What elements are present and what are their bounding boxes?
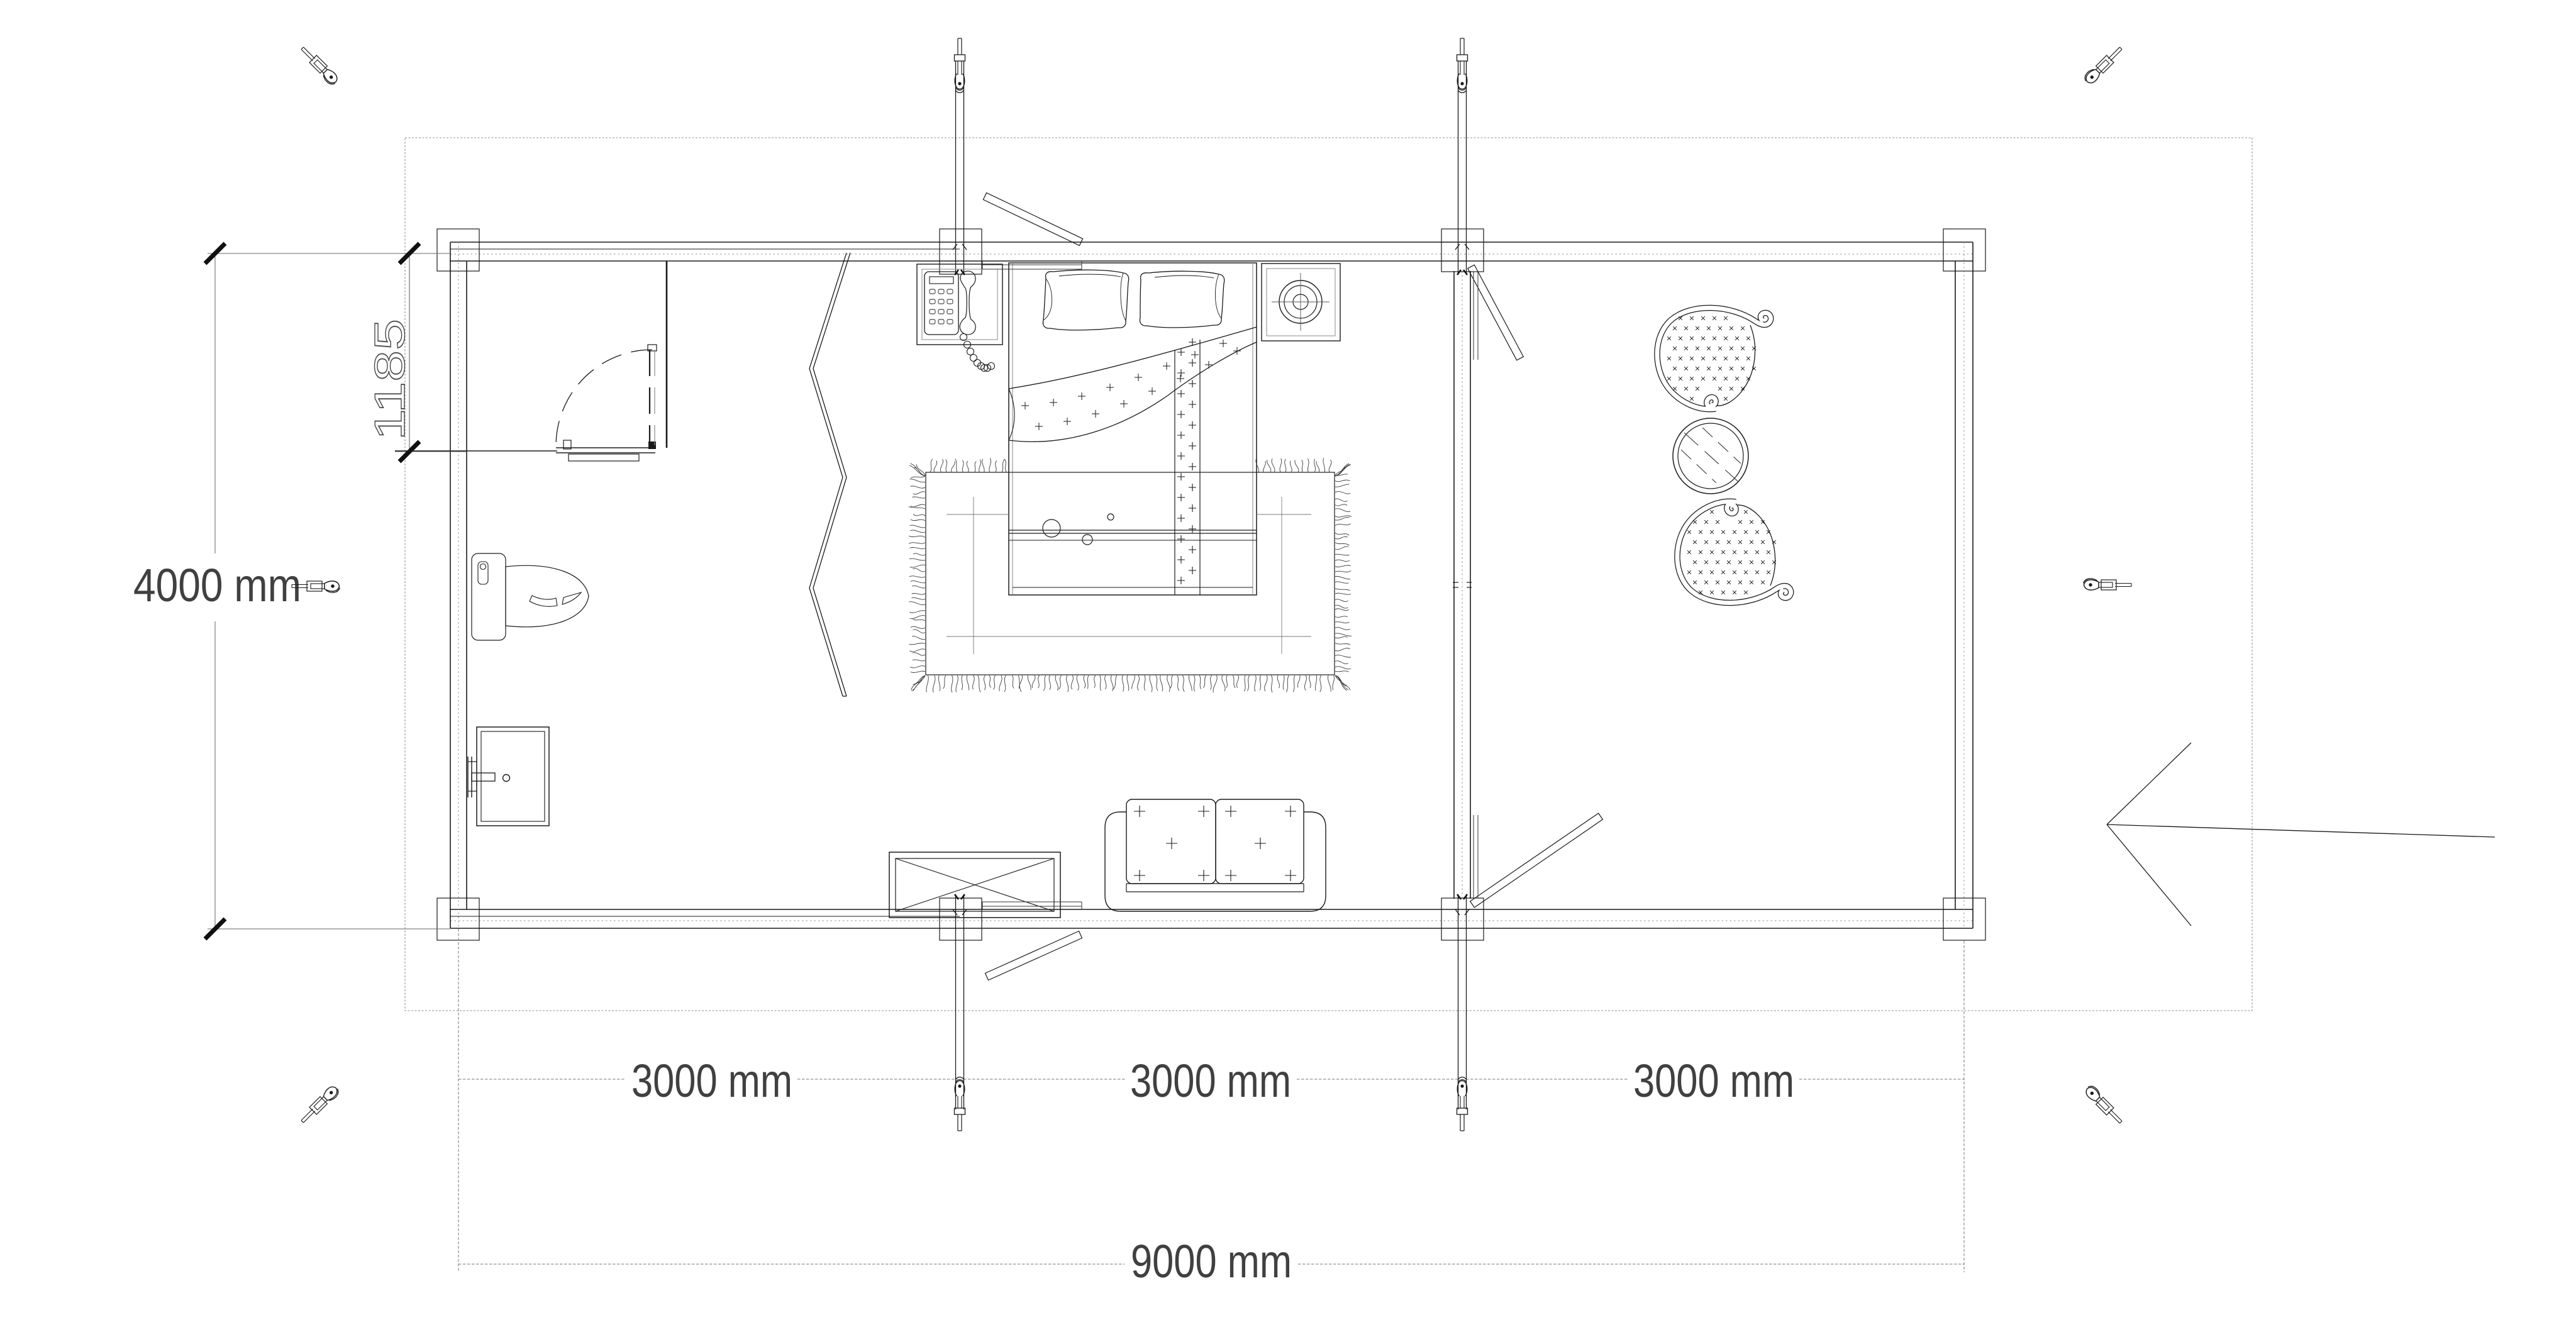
svg-text:3000 mm: 3000 mm bbox=[1633, 1055, 1794, 1107]
svg-text:3000 mm: 3000 mm bbox=[631, 1055, 792, 1107]
svg-text:9000 mm: 9000 mm bbox=[1131, 1235, 1292, 1287]
svg-text:3000 mm: 3000 mm bbox=[1130, 1055, 1291, 1107]
svg-text:4000 mm: 4000 mm bbox=[133, 559, 301, 611]
svg-text:1185: 1185 bbox=[366, 319, 414, 440]
